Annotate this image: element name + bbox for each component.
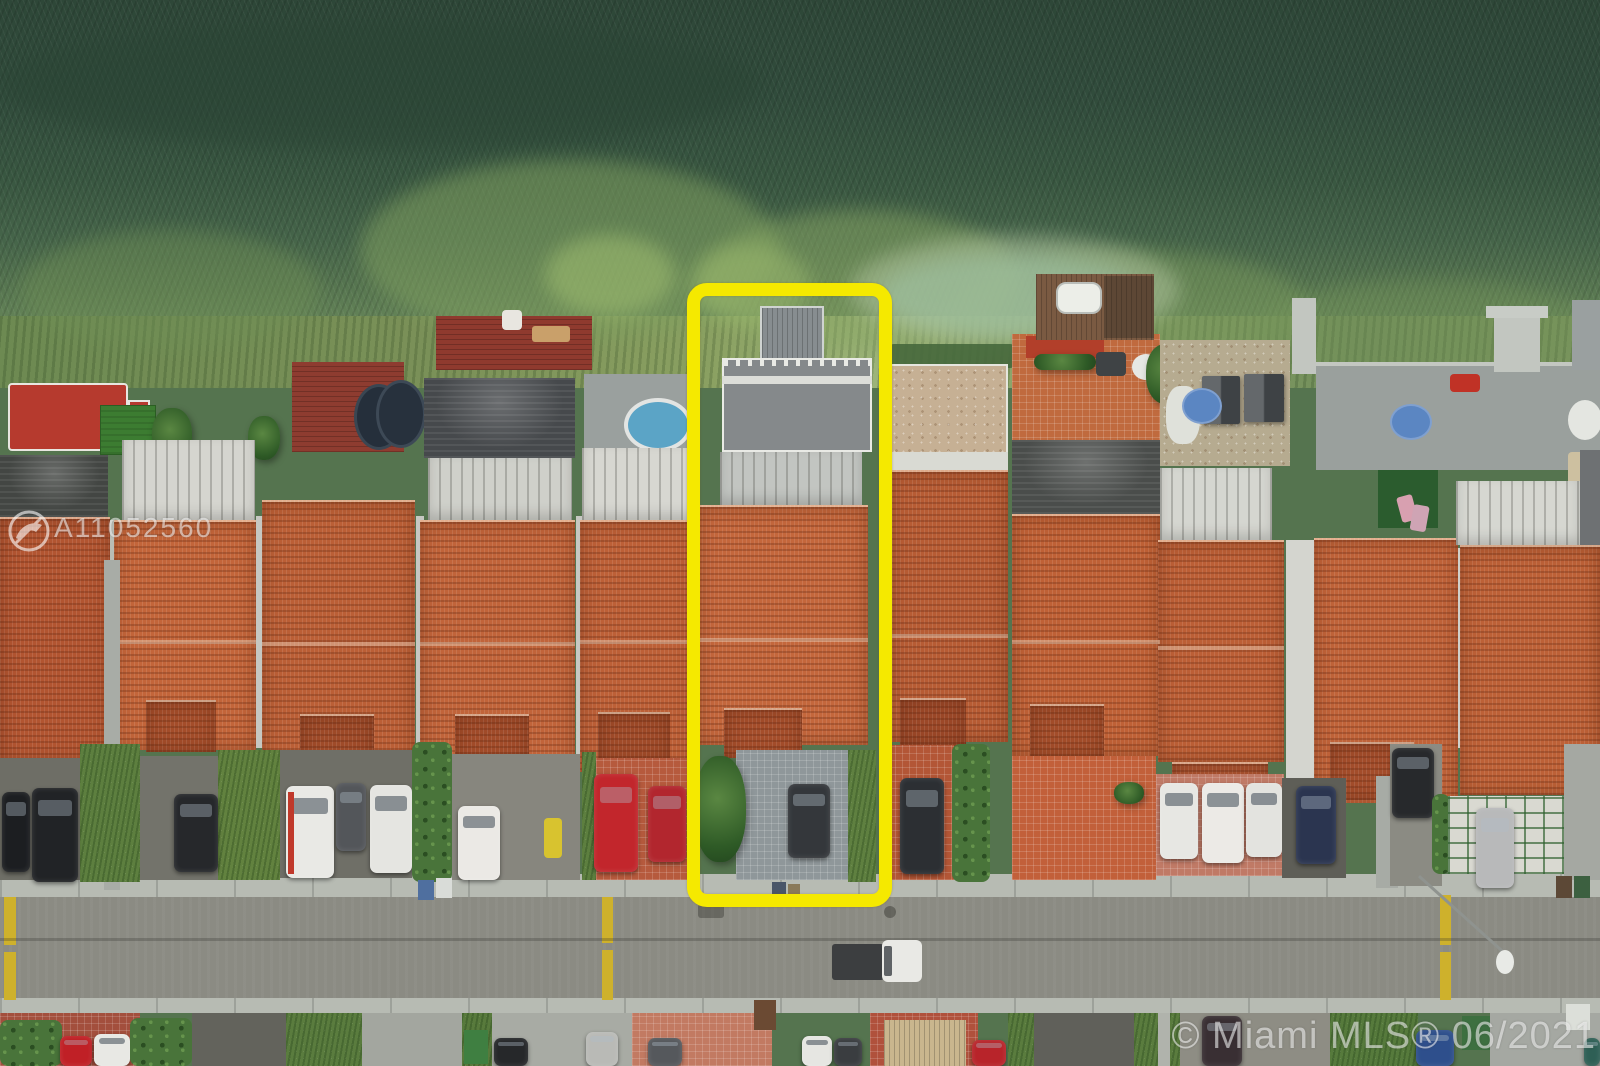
house7-entry-gable	[900, 698, 966, 746]
aerial-photo: A11052560 © Miami MLS® 06/2021	[0, 0, 1600, 1066]
ridge-line-3	[262, 642, 415, 646]
sidewalk-bins-blue	[418, 880, 434, 900]
yellow-line-3b	[1440, 952, 1451, 1000]
deck-chair	[502, 310, 522, 330]
house9-metal-roof	[1160, 468, 1272, 540]
concrete-pier	[1292, 298, 1316, 374]
round-pool-dark	[376, 380, 426, 448]
yellow-bin	[544, 818, 562, 858]
white-car-row-1	[1160, 783, 1198, 859]
yellow-line-2b	[602, 950, 613, 1000]
pickup-bed	[832, 944, 884, 980]
bottom-hedge-1	[0, 1020, 62, 1066]
house2-metal-roof	[122, 440, 255, 520]
boat-lift	[1572, 300, 1600, 370]
dark-suv-2	[1392, 748, 1434, 818]
bottom-driveway-1	[192, 1013, 286, 1066]
bottom-driveway-2	[1034, 1013, 1134, 1066]
bottom-brown-bins	[754, 1000, 776, 1030]
bottom-grass-3	[1008, 1013, 1034, 1066]
house7-parapet	[888, 452, 1008, 470]
bottom-silver-car	[586, 1032, 618, 1066]
pebble-patio-lot7	[888, 364, 1008, 466]
black-sedan	[174, 794, 218, 872]
grass-strip-2	[218, 750, 280, 880]
house12-gray-roof	[1580, 450, 1600, 545]
pickup-windshield	[884, 946, 892, 976]
bottom-concrete-1	[362, 1013, 462, 1066]
dock-weathered-edge	[1104, 276, 1154, 338]
algae-band-dark	[0, 20, 760, 150]
blue-umbrella-1	[1182, 388, 1222, 424]
listing-id-watermark: A11052560	[54, 512, 213, 544]
red-gokart	[1450, 374, 1480, 392]
hedge-1	[412, 742, 452, 882]
bottom-black-car	[494, 1038, 528, 1066]
satellite-dish-2	[1568, 400, 1600, 440]
bottom-dark-car-2	[834, 1038, 862, 1066]
street-lamp-head	[1496, 950, 1514, 974]
house8-dark-roof	[1012, 440, 1160, 514]
white-van	[370, 785, 412, 873]
house8-entry-gable	[1030, 704, 1104, 758]
red-car-1	[594, 774, 638, 872]
bottom-tan-deck	[884, 1020, 966, 1066]
trash-bin-green	[1574, 876, 1590, 898]
red-car-2	[648, 786, 686, 862]
jet-ski	[1056, 282, 1102, 314]
house4-metal-roof	[428, 458, 572, 520]
bottom-red-car-2	[972, 1040, 1006, 1066]
street-center-seam	[0, 938, 1600, 941]
bottom-gray-car	[648, 1038, 682, 1066]
bottom-red-car	[60, 1036, 92, 1066]
grill	[1096, 352, 1126, 376]
house5-entry-gable	[598, 712, 670, 764]
yellow-line-1b	[4, 952, 16, 1000]
bottom-hedge-2	[130, 1018, 192, 1066]
oval-pool-blue	[624, 398, 692, 452]
white-car-row-2	[1202, 783, 1244, 863]
house5-metal-roof	[582, 448, 695, 520]
black-suv-2	[32, 788, 78, 882]
manhole	[884, 906, 896, 918]
ridge-line-8	[1012, 640, 1160, 644]
t-dock-cap	[1486, 306, 1548, 318]
bottom-grass-1	[286, 1013, 362, 1066]
white-sedan-1	[458, 806, 500, 880]
box-truck-stripe	[288, 792, 294, 874]
mls-copyright-watermark: © Miami MLS® 06/2021	[1172, 1015, 1597, 1058]
pink-lounger-2	[1409, 504, 1429, 532]
bottom-stone-path	[1158, 1013, 1170, 1066]
house9-tile-roof	[1158, 540, 1284, 762]
property-highlight-box	[687, 283, 892, 907]
t-dock	[1494, 310, 1540, 372]
house2-entry-gable	[146, 700, 216, 752]
navy-car	[1296, 786, 1336, 864]
palm-leaf	[1114, 782, 1144, 804]
black-suv-1	[2, 792, 30, 872]
dark-suv-lot7	[900, 778, 944, 874]
driveway-8-red-pavers	[1012, 756, 1156, 880]
house11-metal-roof	[1456, 481, 1580, 545]
ridge-line-2	[114, 640, 256, 644]
deck-lounge	[532, 326, 570, 342]
ridge-line-7	[888, 634, 1008, 638]
mls-camera-logo-icon	[6, 508, 52, 554]
silver-car	[1476, 808, 1514, 888]
white-car-row-3	[1246, 783, 1282, 857]
yellow-line-2a	[602, 897, 613, 943]
driveway-12	[1564, 744, 1600, 880]
sidewalk-bins-white	[436, 878, 452, 898]
patio-plants	[1034, 354, 1096, 370]
ridge-line-9	[1158, 646, 1284, 650]
bottom-white-car	[94, 1034, 130, 1066]
blue-umbrella-2	[1390, 404, 1432, 440]
grass-strip-1	[80, 744, 140, 882]
algae-patch-3	[20, 230, 320, 350]
gap-wall-7	[1286, 540, 1314, 802]
shed-2	[1244, 374, 1284, 422]
hedge-2	[952, 744, 990, 882]
algae-bright-1	[545, 235, 675, 315]
house4-dark-roof	[424, 378, 575, 458]
ridge-line-5	[580, 640, 695, 644]
ridge-line-4	[420, 642, 575, 646]
gray-sedan-1	[336, 783, 366, 851]
bottom-green-bin	[464, 1030, 488, 1064]
trash-bin-brown	[1556, 876, 1572, 898]
bottom-white-car-2	[802, 1036, 832, 1066]
